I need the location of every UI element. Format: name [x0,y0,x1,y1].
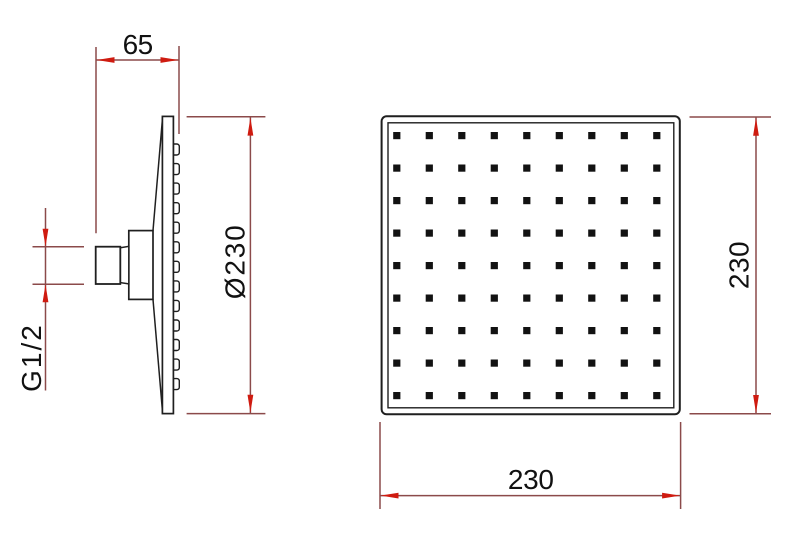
svg-text:230: 230 [508,464,554,495]
svg-text:G1/2: G1/2 [16,323,47,392]
svg-text:Ø230: Ø230 [220,224,251,300]
svg-text:65: 65 [123,29,153,60]
svg-text:230: 230 [723,241,754,289]
